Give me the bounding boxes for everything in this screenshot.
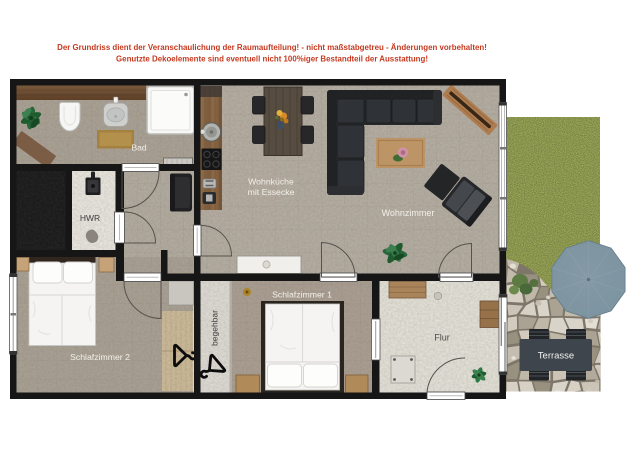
- svg-text:mit Essecke: mit Essecke: [248, 187, 295, 197]
- svg-text:Flur: Flur: [434, 333, 450, 343]
- svg-text:Wohnzimmer: Wohnzimmer: [382, 208, 435, 218]
- svg-text:Schlafzimmer 2: Schlafzimmer 2: [70, 352, 130, 362]
- svg-text:begehbar: begehbar: [210, 310, 220, 346]
- svg-text:HWR: HWR: [80, 213, 100, 223]
- svg-text:Terrasse: Terrasse: [538, 351, 574, 362]
- svg-text:Wohnküche: Wohnküche: [248, 177, 294, 187]
- svg-text:Bad: Bad: [131, 143, 146, 153]
- svg-text:Der Grundriss dient der Verans: Der Grundriss dient der Veranschaulichun…: [57, 43, 487, 52]
- svg-text:Schlafzimmer 1: Schlafzimmer 1: [272, 290, 332, 300]
- svg-text:Genutzte Dekoelemente sind eve: Genutzte Dekoelemente sind eventuell nic…: [116, 55, 428, 64]
